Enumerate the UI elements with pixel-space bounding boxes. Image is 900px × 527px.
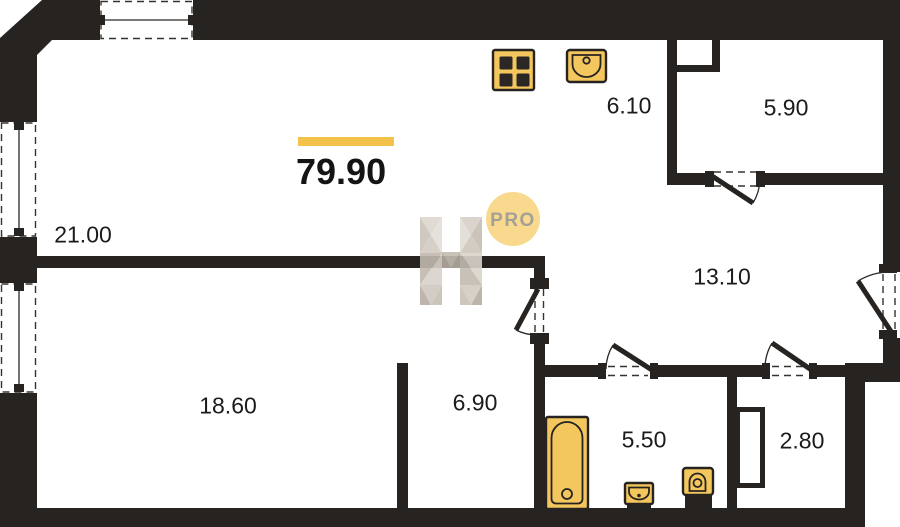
door-jamb — [598, 363, 606, 379]
floorplan-drawing: PRO — [0, 0, 900, 527]
wall-right-lower — [845, 379, 865, 508]
wall-kitchen-storage — [667, 40, 677, 185]
window-left-upper — [2, 122, 36, 236]
wall-hall-b — [658, 365, 762, 377]
area-label-wc: 2.80 — [780, 428, 825, 455]
wall-hall-c — [817, 365, 845, 377]
door-jamb — [756, 171, 765, 187]
area-label-cabinet: 6.90 — [453, 390, 498, 417]
window-top — [97, 2, 196, 39]
door-storage — [712, 172, 760, 203]
door-jamb — [762, 363, 770, 379]
door-wc — [765, 343, 813, 376]
door-balcony — [858, 264, 897, 339]
total-area-accent-bar — [298, 137, 394, 146]
floorplan-canvas: PRO 79.90 21.00 6.10 5.90 13.10 18.60 6.… — [0, 0, 900, 527]
wall-chamfer-corner — [0, 0, 100, 122]
wall-bottom — [0, 508, 865, 527]
pro-badge: PRO — [486, 192, 540, 246]
kitchen-sink-icon — [567, 50, 606, 82]
wall-left-lower — [0, 393, 37, 527]
wall-interior-vertical-bottom — [534, 336, 545, 508]
stove-icon — [493, 50, 534, 90]
pro-badge-text: PRO — [490, 210, 536, 231]
area-label-living: 21.00 — [54, 222, 112, 249]
washbasin-icon — [625, 483, 653, 510]
wall-hall-a — [545, 365, 598, 377]
shaft-wc-inner — [740, 412, 760, 483]
total-area-label: 79.90 — [296, 151, 386, 193]
door-cabinet — [516, 289, 544, 335]
wall-partition-cabinet — [397, 363, 408, 508]
area-label-storage: 5.90 — [764, 95, 809, 122]
wall-storage-bottom-right — [765, 173, 887, 185]
fixtures — [493, 50, 713, 510]
wall-storage-bottom-left — [667, 173, 705, 185]
area-label-hallway: 13.10 — [693, 264, 751, 291]
door-jamb — [530, 278, 549, 289]
wall-top — [193, 0, 900, 40]
area-label-bedroom: 18.60 — [199, 393, 257, 420]
toilet-icon — [683, 468, 713, 510]
bathtub-icon — [546, 417, 588, 509]
builder-logo-watermark — [420, 217, 482, 305]
area-label-bathroom: 5.50 — [622, 427, 667, 454]
wall-left-mid — [0, 237, 37, 283]
wall-right-upper — [883, 40, 900, 272]
window-left-lower — [2, 283, 36, 392]
area-label-kitchen: 6.10 — [607, 93, 652, 120]
shaft-storage-border-bottom — [677, 65, 720, 72]
door-bathroom — [606, 345, 652, 376]
